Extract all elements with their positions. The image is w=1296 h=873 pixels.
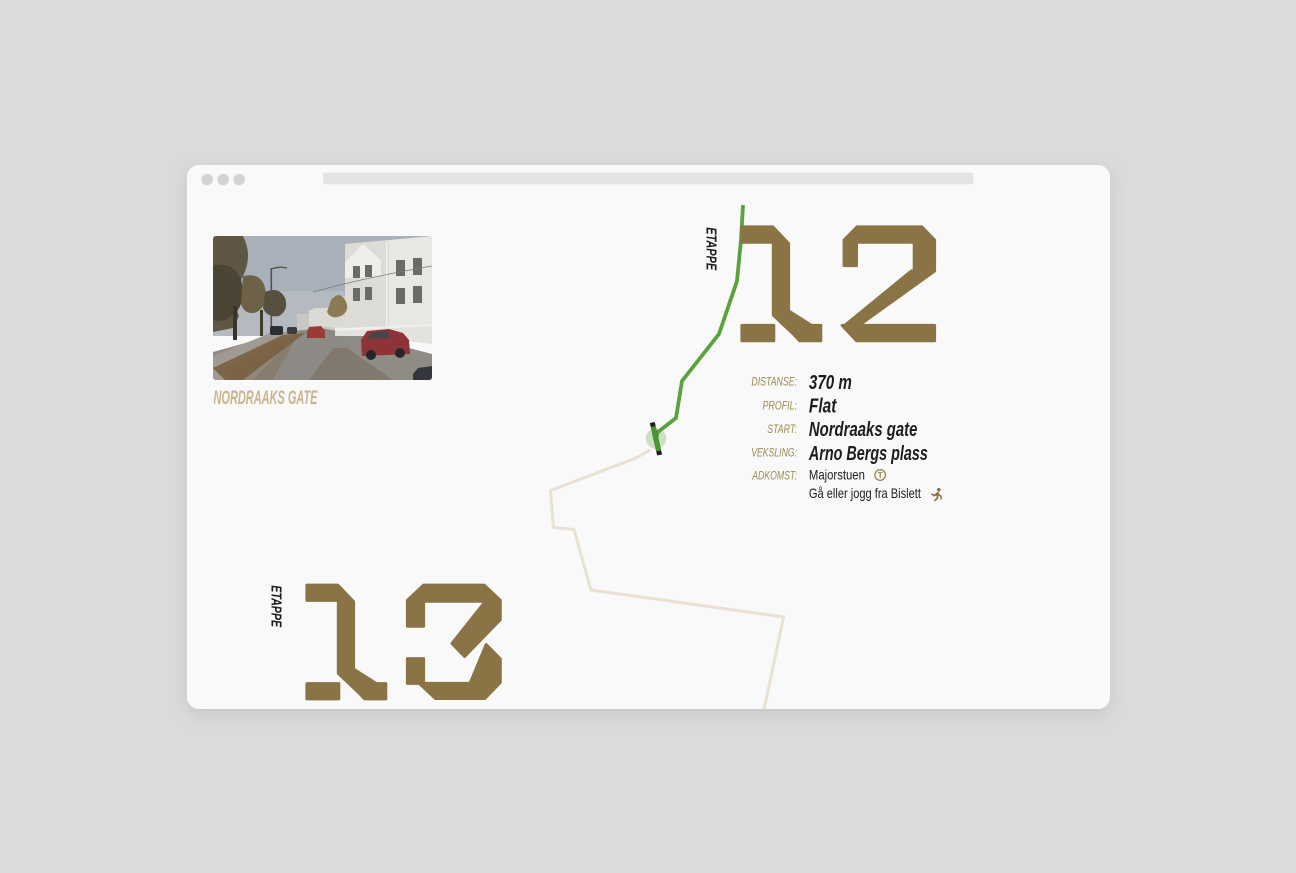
- svg-text:VEKSLING:: VEKSLING:: [751, 448, 797, 460]
- svg-text:ETAPPE: ETAPPE: [703, 227, 719, 271]
- svg-text:NORDRAAKS GATE: NORDRAAKS GATE: [214, 388, 319, 409]
- svg-text:DISTANSE:: DISTANSE:: [751, 377, 797, 389]
- svg-text:Flat: Flat: [809, 395, 837, 418]
- svg-text:Majorstuen: Majorstuen: [809, 467, 865, 483]
- svg-text:Nordraaks gate: Nordraaks gate: [809, 418, 918, 441]
- svg-text:T: T: [878, 471, 883, 480]
- svg-text:370 m: 370 m: [809, 371, 852, 394]
- svg-text:START:: START:: [767, 424, 797, 436]
- svg-text:ADKOMST:: ADKOMST:: [751, 471, 797, 483]
- svg-text:Arno Bergs plass: Arno Bergs plass: [808, 442, 928, 465]
- svg-text:ETAPPE: ETAPPE: [268, 585, 284, 628]
- svg-text:PROFIL:: PROFIL:: [763, 400, 798, 412]
- svg-text:Gå eller jogg fra Bislett: Gå eller jogg fra Bislett: [809, 485, 921, 501]
